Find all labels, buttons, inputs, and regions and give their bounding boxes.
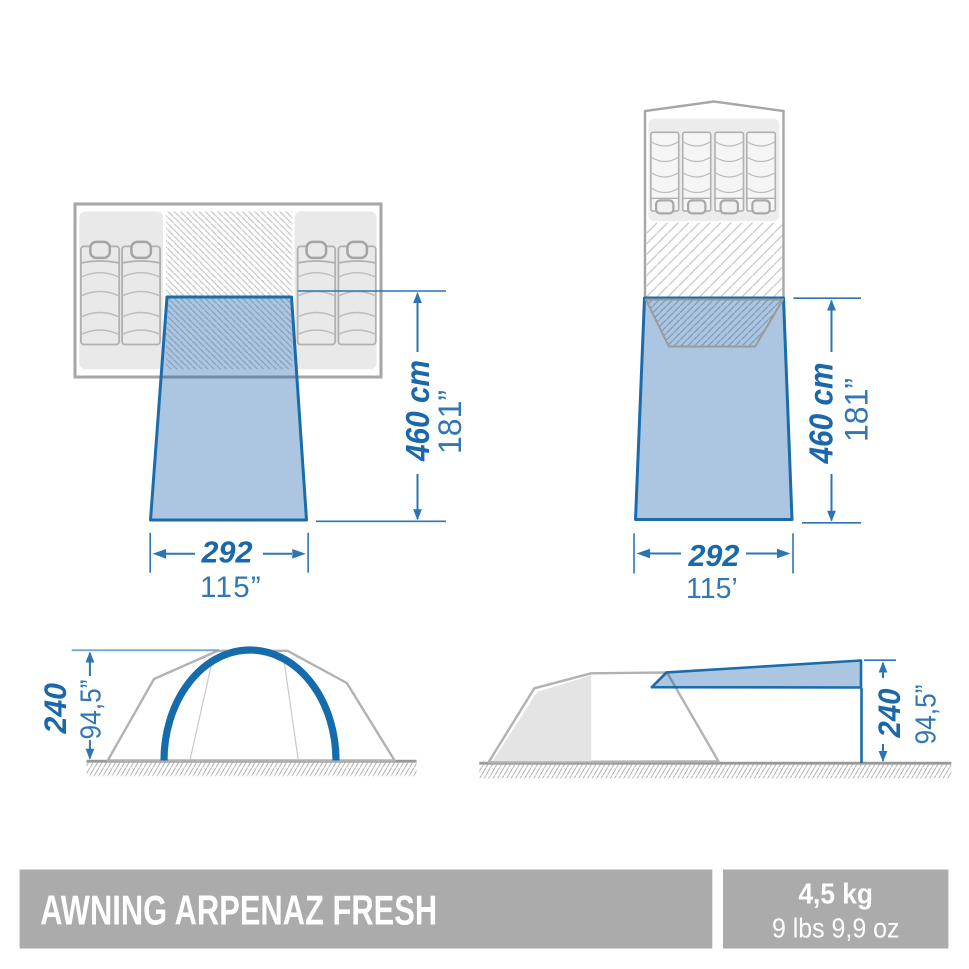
svg-text:AWNING ARPENAZ FRESH: AWNING ARPENAZ FRESH (40, 887, 437, 934)
svg-text:115”: 115” (200, 571, 262, 604)
svg-text:9 lbs 9,9 oz: 9 lbs 9,9 oz (772, 913, 900, 944)
svg-text:4,5 kg: 4,5 kg (798, 878, 873, 910)
svg-text:94,5”: 94,5” (76, 680, 108, 740)
svg-text:94,5”: 94,5” (911, 685, 943, 745)
svg-text:115’: 115’ (686, 573, 738, 605)
svg-text:240: 240 (871, 688, 907, 738)
svg-text:181”: 181” (839, 378, 875, 442)
svg-text:292: 292 (687, 539, 739, 573)
svg-text:292: 292 (201, 536, 253, 570)
svg-text:460 cm: 460 cm (399, 360, 436, 462)
svg-text:240: 240 (37, 683, 73, 735)
svg-text:181”: 181” (432, 390, 468, 454)
svg-text:460 cm: 460 cm (803, 363, 840, 465)
